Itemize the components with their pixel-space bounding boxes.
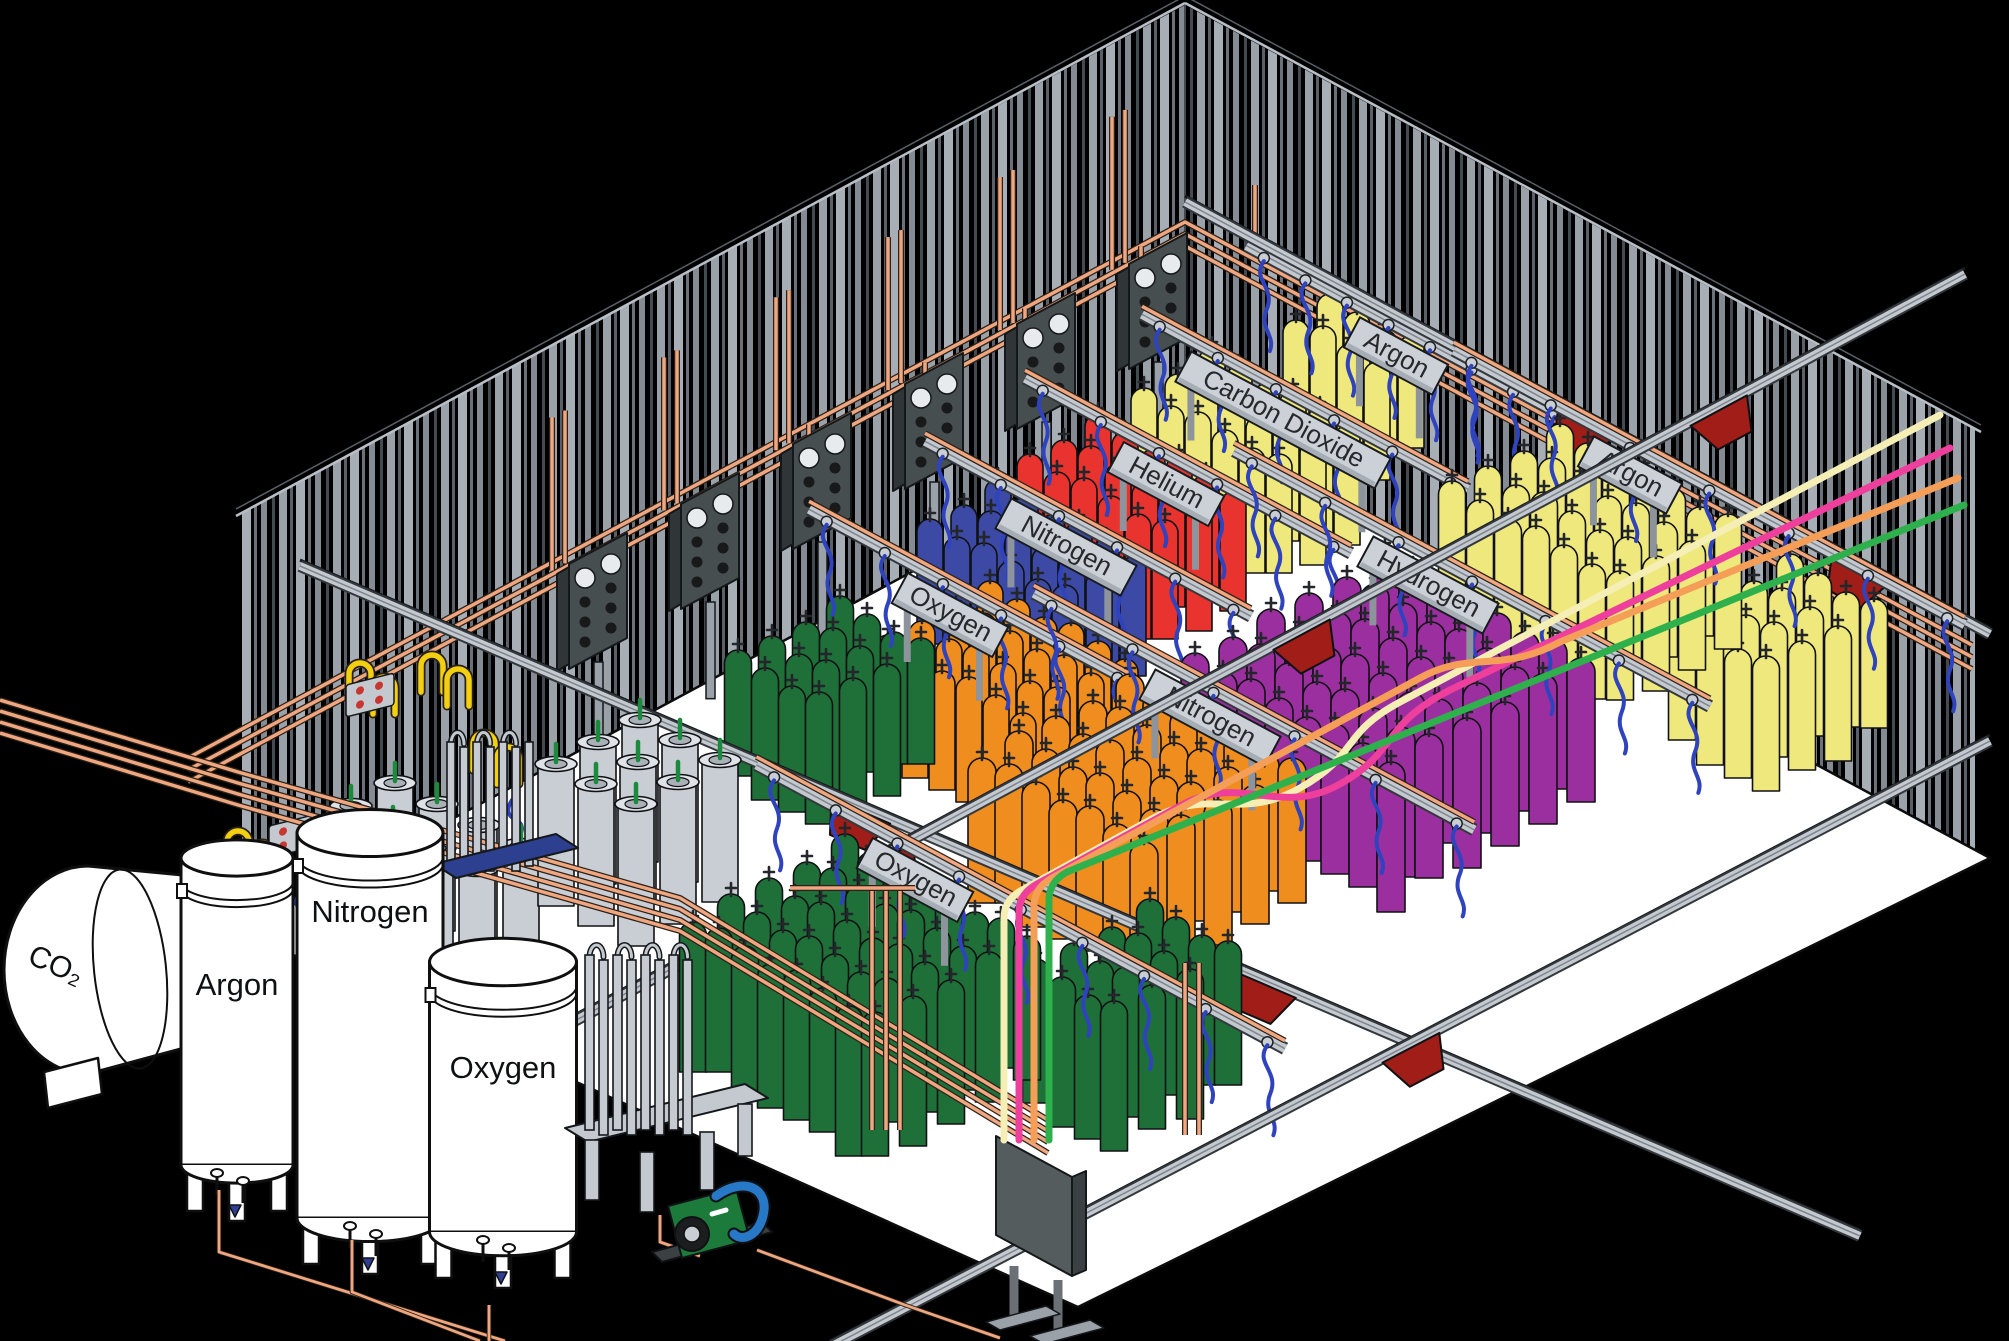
liquid-dewar-cylinder (702, 760, 738, 902)
gas-cylinder (1825, 626, 1852, 761)
gas-cylinder (1204, 800, 1232, 945)
gas-cylinder (1679, 541, 1706, 670)
gas-cylinder (1101, 1001, 1128, 1151)
gas-cylinder (1567, 658, 1595, 802)
gas-cylinder (1753, 656, 1780, 791)
gas-cylinder (1529, 674, 1557, 824)
plant-illustration: ArgonCarbon DioxideHeliumNitrogenOxygenA… (0, 0, 2009, 1341)
gas-cylinder (908, 638, 935, 764)
storage-tank-argon-tank: Argon (177, 840, 293, 1221)
gas-cylinder (840, 678, 867, 804)
cylinder-pump (652, 1186, 772, 1262)
gas-cylinder (1789, 641, 1816, 770)
gas-cylinder (874, 664, 901, 796)
tank-label-oxygen-tank: Oxygen (450, 1050, 557, 1085)
plant-scene: ArgonCarbon DioxideHeliumNitrogenOxygenA… (0, 0, 2009, 1341)
gas-cylinder (1725, 649, 1752, 778)
storage-tank-nitrogen-tank: Nitrogen (293, 809, 443, 1274)
gas-cylinder (1049, 977, 1076, 1127)
tank-label-argon-tank: Argon (196, 967, 279, 1002)
gas-cylinder (1491, 702, 1519, 846)
storage-tank-oxygen-tank: Oxygen (426, 938, 577, 1288)
tank-label-nitrogen-tank: Nitrogen (311, 894, 428, 929)
